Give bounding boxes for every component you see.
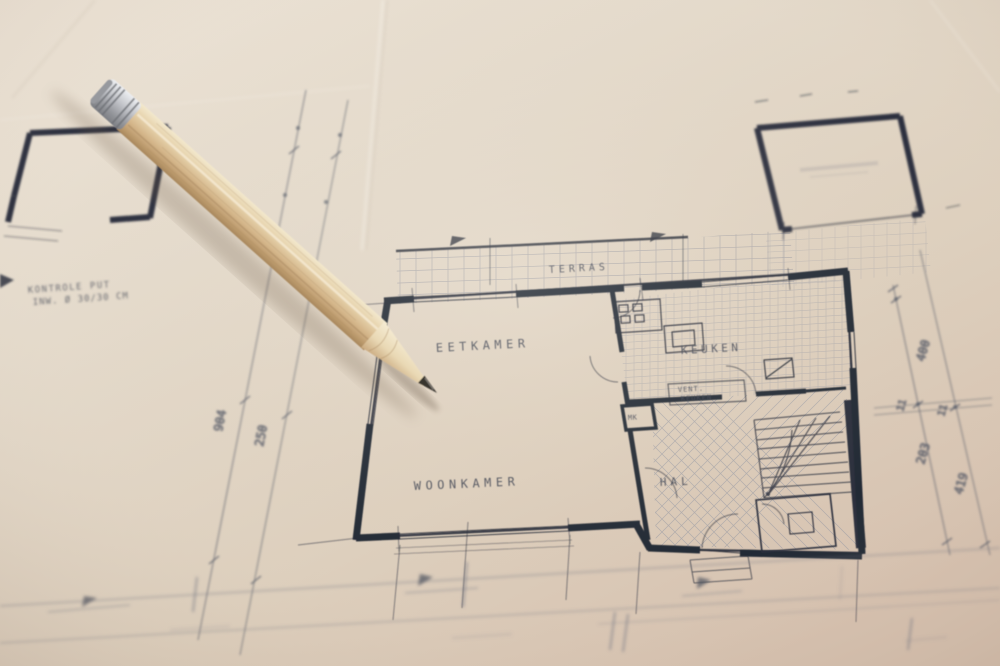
blueprint-photo: KONTROLE PUT INW. Ø 30/30 CM 904 250 400… <box>0 0 1000 666</box>
blueprint-photo-scene: KONTROLE PUT INW. Ø 30/30 CM 904 250 400… <box>0 0 1000 666</box>
photo-vignette <box>0 0 1000 666</box>
